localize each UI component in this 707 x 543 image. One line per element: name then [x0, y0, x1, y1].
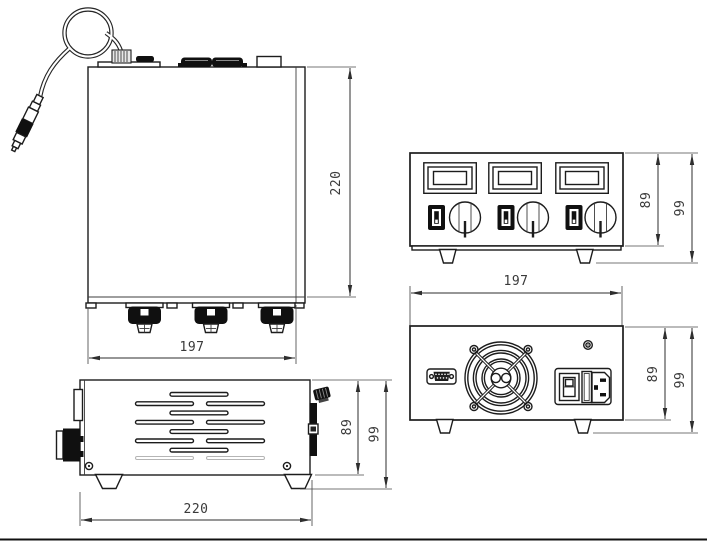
foot — [285, 475, 312, 489]
output-knob-3-top — [259, 303, 296, 333]
panel-meter-3 — [556, 163, 609, 194]
rear-view: 89 99 — [410, 326, 698, 433]
dim-label-front-width: 197 — [504, 274, 529, 289]
power-toggle-2 — [498, 205, 515, 230]
dimension-drawing-page: 220 197 — [0, 0, 707, 543]
dim-label-rear-overall-height: 99 — [673, 372, 688, 389]
meter-bezel-side — [74, 390, 83, 421]
dim-top-height: 220 — [307, 67, 356, 297]
dim-label-side-length: 220 — [184, 502, 209, 517]
foot — [577, 250, 594, 264]
panel-meter-1 — [424, 163, 477, 194]
dim-label-top-height: 220 — [329, 171, 344, 196]
top-button-bar — [136, 56, 154, 62]
power-entry-module — [555, 369, 611, 405]
power-toggle-1 — [428, 205, 445, 230]
output-connector-side — [57, 429, 84, 462]
top-view-chassis — [88, 67, 305, 303]
dim-label-side-body-height: 89 — [340, 419, 355, 436]
power-toggle-3 — [566, 205, 583, 230]
fuse-drawer — [582, 372, 592, 403]
dim-label-side-overall-height: 99 — [368, 426, 383, 443]
rear-connector-top — [257, 57, 281, 68]
probe-connector — [7, 93, 45, 154]
foot — [96, 475, 123, 489]
top-view: 220 197 — [7, 10, 356, 365]
dim-front-width: 197 — [410, 274, 622, 326]
db9-connector — [427, 369, 456, 384]
foot — [440, 250, 457, 264]
rear-gland-side — [309, 386, 332, 456]
foot — [437, 420, 454, 434]
dimension-drawing: 220 197 — [0, 0, 707, 543]
top-handle-feet — [178, 58, 247, 68]
rocker-switch — [560, 374, 580, 401]
output-knob-1-top — [126, 303, 163, 333]
dim-label-rear-body-height: 89 — [646, 366, 661, 383]
dim-label-top-width: 197 — [180, 340, 205, 355]
side-view: 89 99 220 — [57, 380, 393, 526]
cooling-fan — [465, 342, 537, 414]
foot — [575, 420, 592, 434]
panel-meter-2 — [489, 163, 542, 194]
page-border-rule — [0, 539, 707, 541]
iec-inlet — [592, 373, 610, 403]
dim-label-front-overall-height: 99 — [673, 200, 688, 217]
front-view: 89 99 197 — [410, 153, 698, 326]
dim-label-front-body-height: 89 — [639, 192, 654, 209]
output-knob-2-top — [193, 303, 230, 333]
